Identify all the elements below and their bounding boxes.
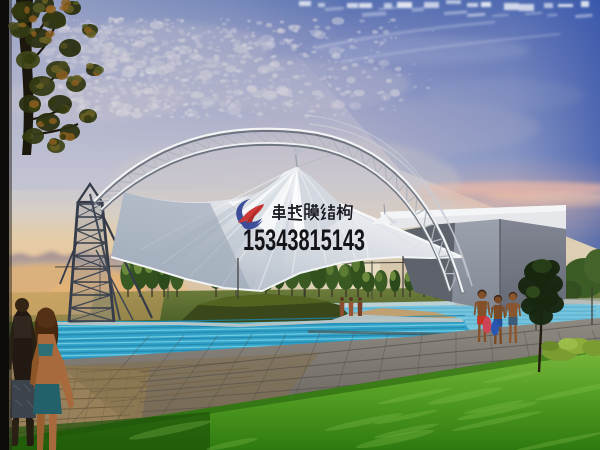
svg-text:15343815143: 15343815143 [243,224,365,257]
